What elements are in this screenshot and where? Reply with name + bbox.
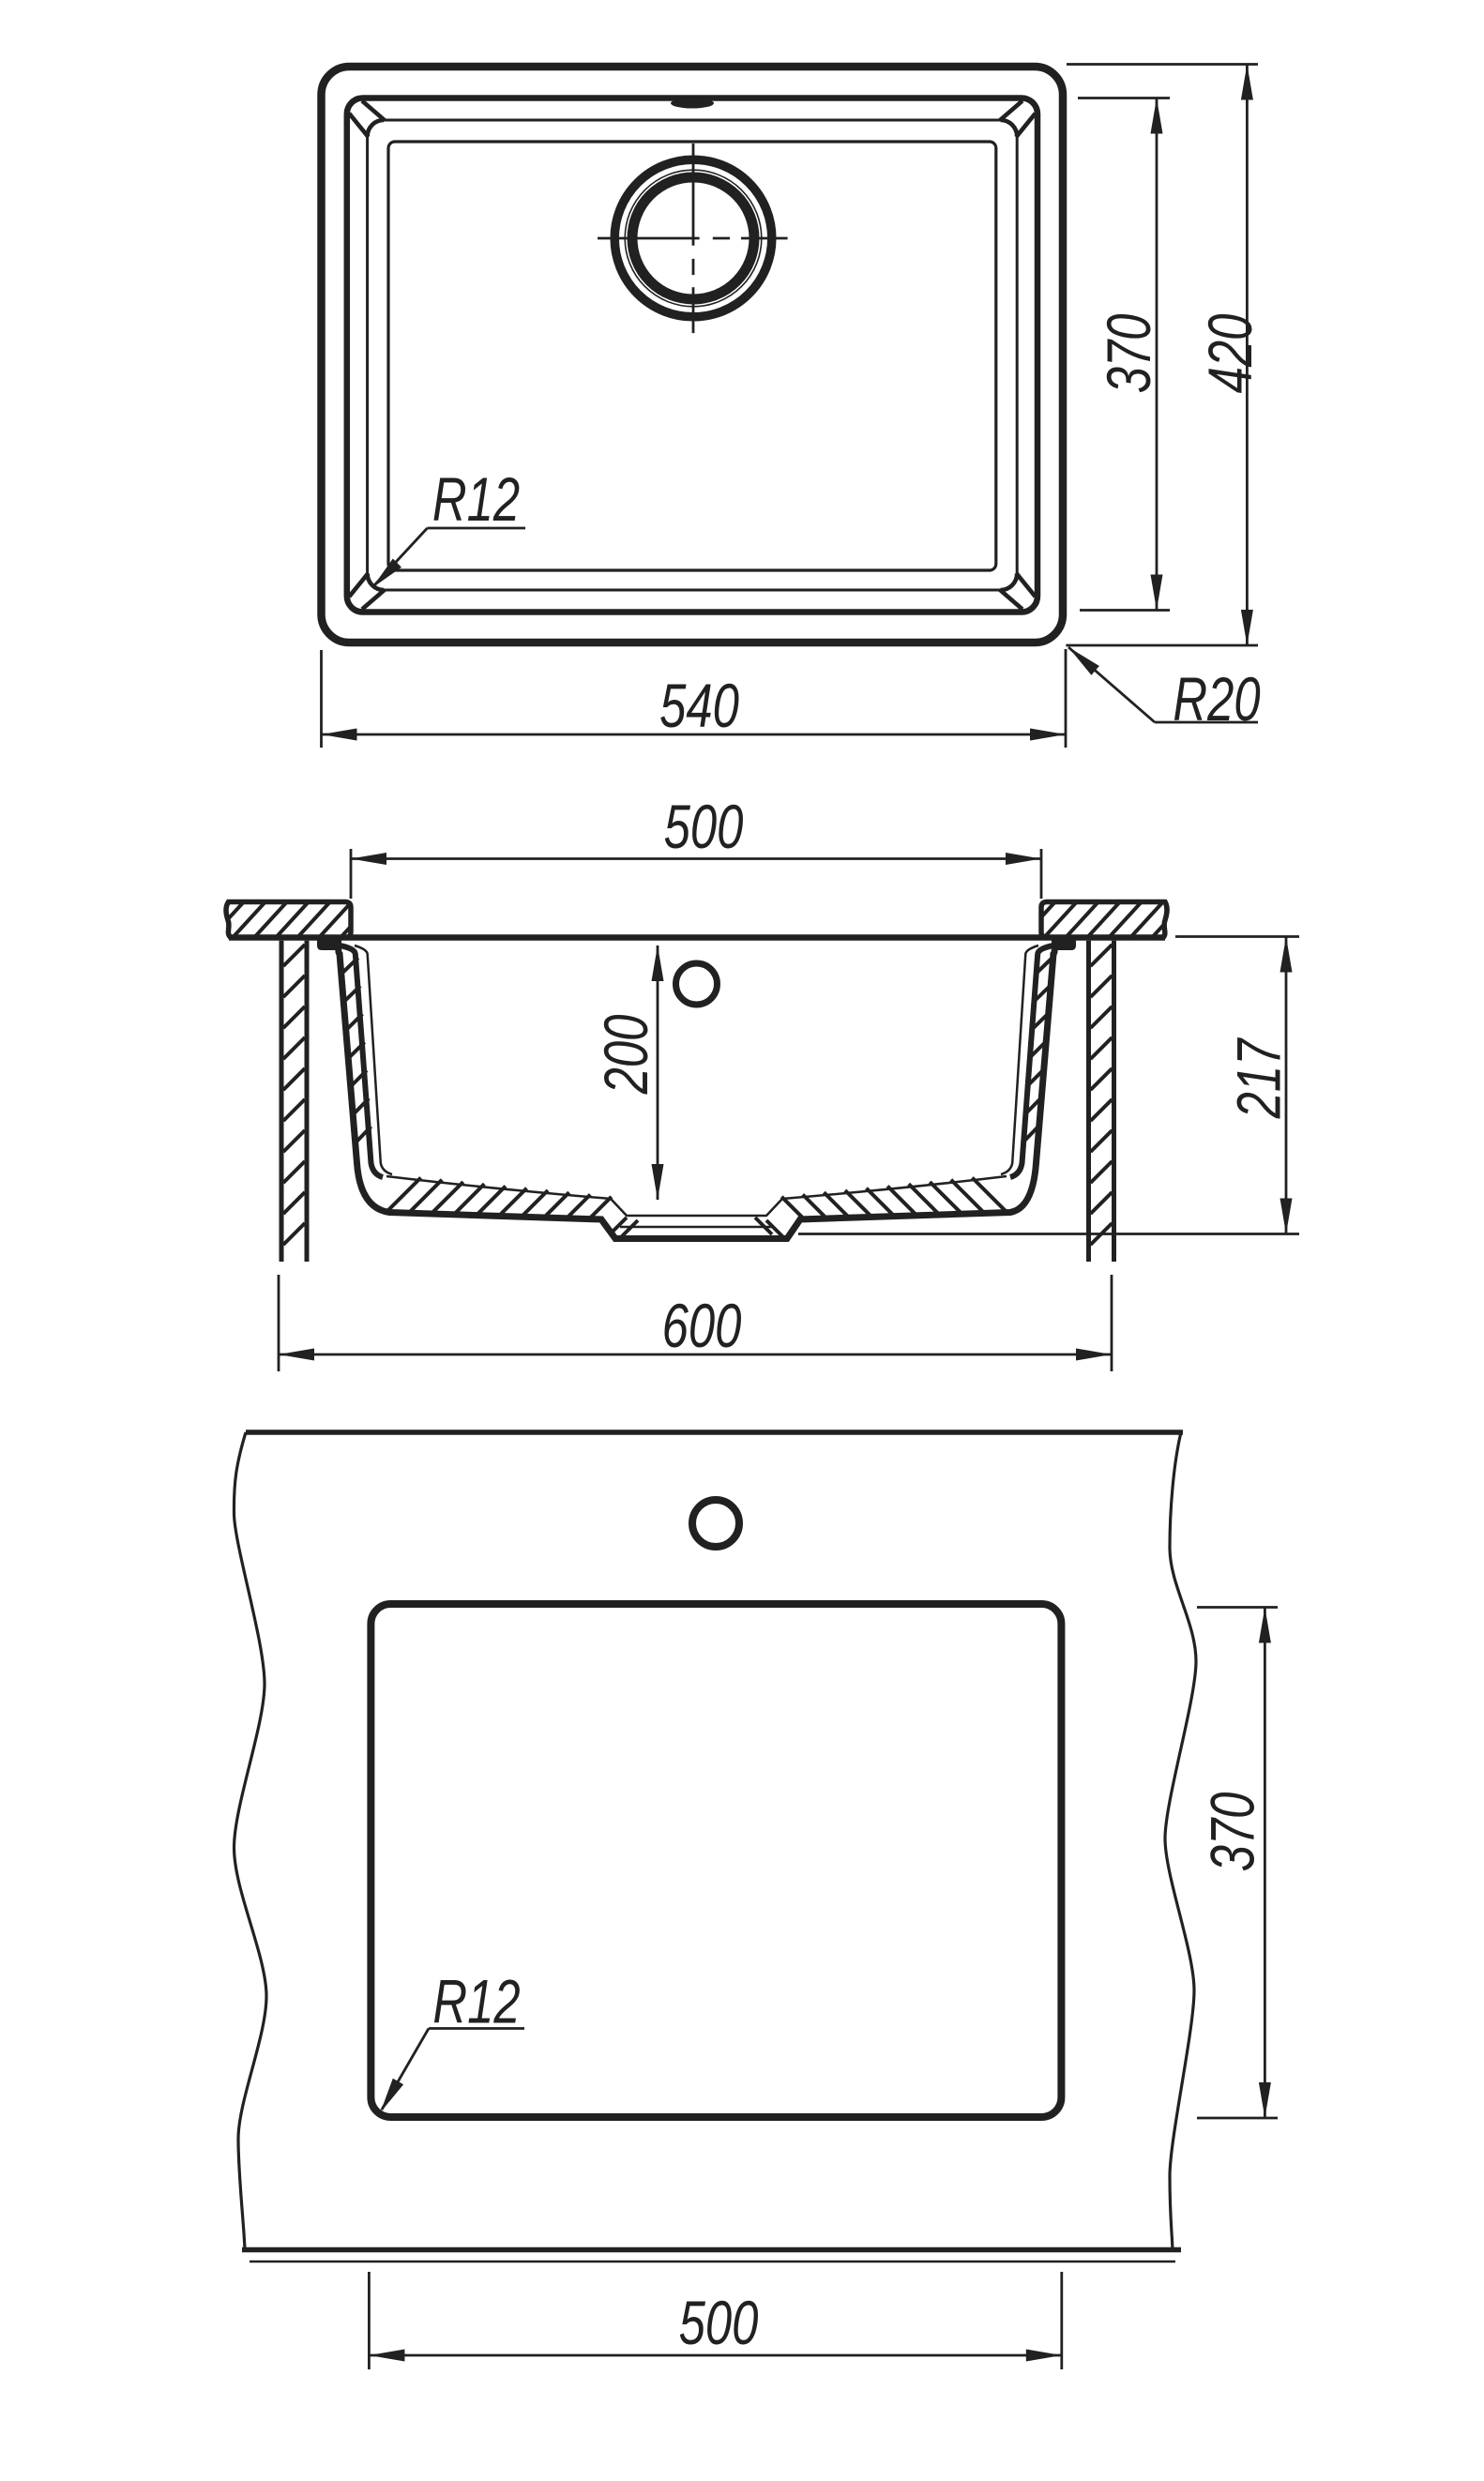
svg-text:540: 540 [659,673,739,741]
svg-text:R12: R12 [432,1968,520,2036]
svg-text:500: 500 [664,794,744,862]
svg-text:R20: R20 [1173,666,1260,734]
svg-text:370: 370 [1199,1792,1267,1871]
svg-text:600: 600 [662,1293,742,1361]
svg-text:420: 420 [1197,313,1265,393]
svg-text:200: 200 [593,1014,661,1095]
svg-text:R12: R12 [432,466,520,535]
svg-text:500: 500 [679,2290,759,2358]
svg-text:217: 217 [1225,1037,1294,1120]
svg-text:370: 370 [1096,313,1164,393]
